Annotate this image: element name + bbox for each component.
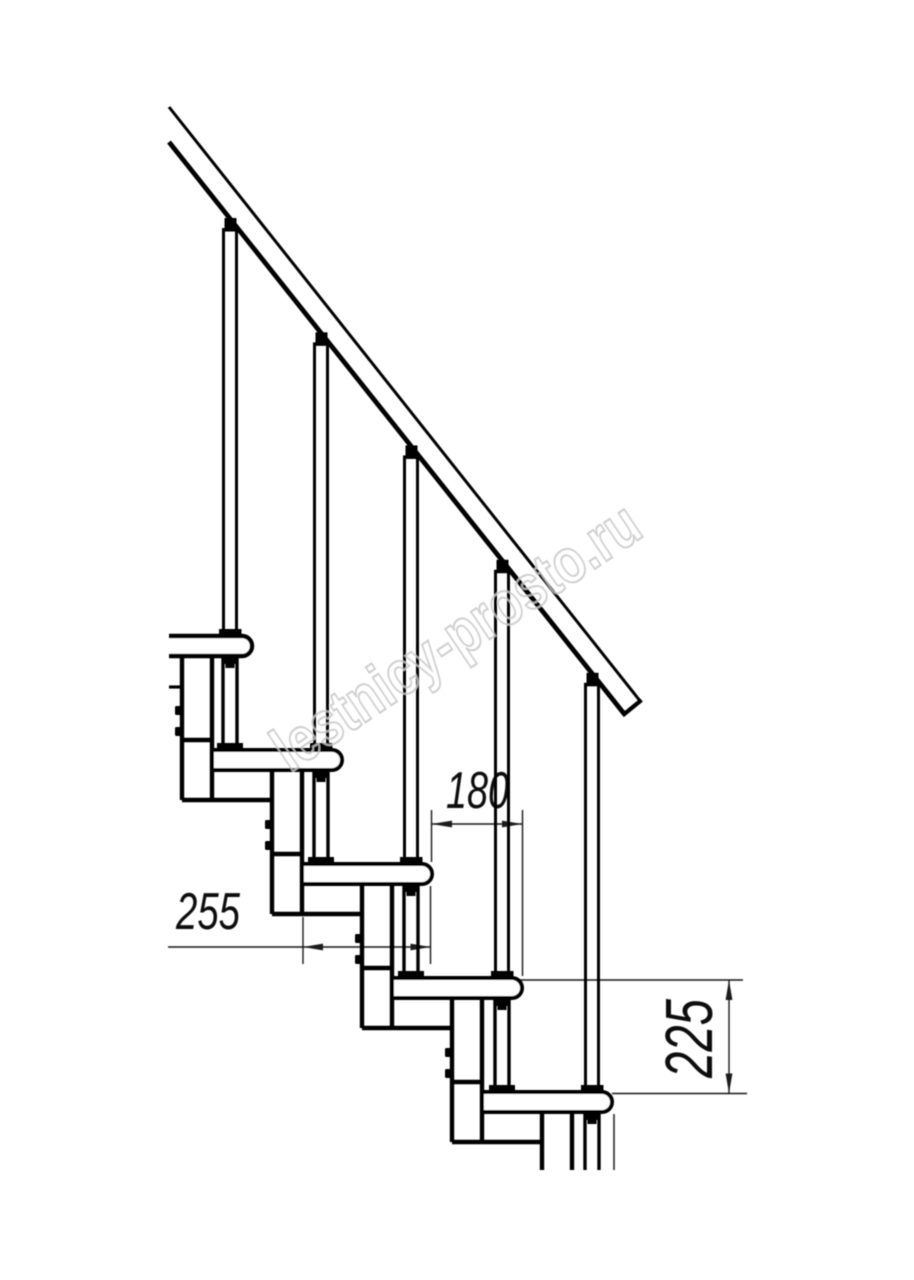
svg-text:180: 180	[446, 762, 509, 820]
svg-text:255: 255	[175, 883, 241, 941]
svg-text:225: 225	[652, 998, 727, 1078]
